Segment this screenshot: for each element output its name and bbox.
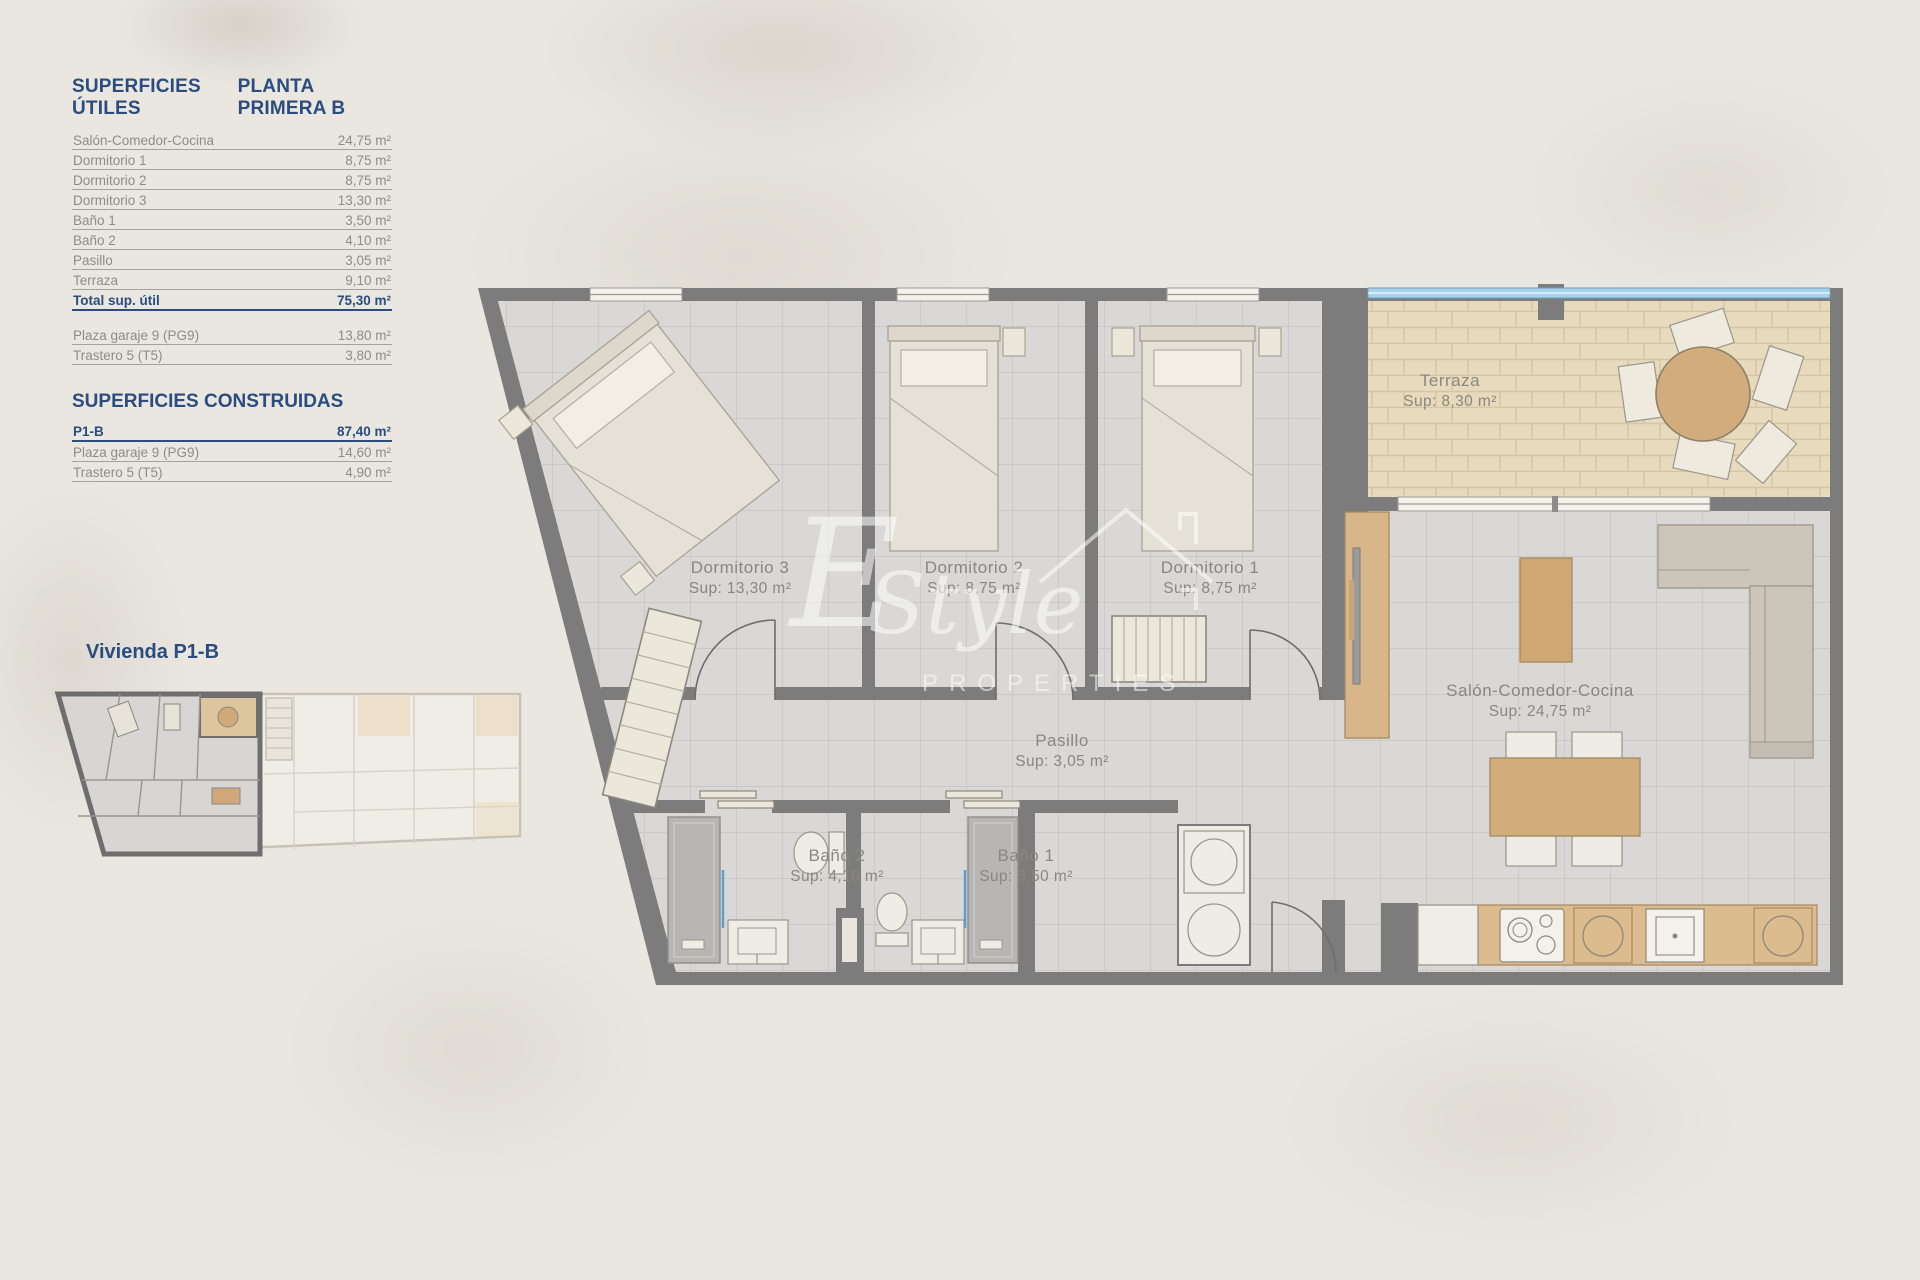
surface-table-panel: SUPERFICIES ÚTILES PLANTA PRIMERA B Saló… bbox=[72, 76, 392, 482]
row-value: 9,10 m² bbox=[345, 274, 391, 287]
panel-section-title: SUPERFICIES CONSTRUIDAS bbox=[72, 391, 392, 413]
table-row: Dormitorio 3 13,30 m² bbox=[72, 192, 392, 210]
row-label: Trastero 5 (T5) bbox=[73, 349, 163, 362]
row-value: 8,75 m² bbox=[345, 154, 391, 167]
table-row-highlight: P1-B 87,40 m² bbox=[72, 423, 392, 442]
toilet-bano-2 bbox=[794, 832, 844, 874]
table-row: Baño 2 4,10 m² bbox=[72, 232, 392, 250]
kitchen-island bbox=[1520, 558, 1572, 662]
texture-blotch bbox=[1250, 980, 1770, 1260]
row-value: 75,30 m² bbox=[337, 294, 391, 307]
kitchen-counter bbox=[1418, 905, 1817, 965]
key-unit-highlight bbox=[58, 694, 260, 854]
terrace-slider-window bbox=[1398, 496, 1710, 512]
row-value: 13,80 m² bbox=[338, 329, 391, 342]
table-row: Pasillo 3,05 m² bbox=[72, 252, 392, 270]
hob bbox=[1500, 909, 1564, 962]
laundry-stack bbox=[1178, 825, 1250, 965]
table-row: Plaza garaje 9 (PG9) 14,60 m² bbox=[72, 444, 392, 462]
bedroom-window bbox=[897, 288, 989, 301]
brochure-page: SUPERFICIES ÚTILES PLANTA PRIMERA B Saló… bbox=[0, 0, 1920, 1280]
row-label: Baño 2 bbox=[73, 234, 116, 247]
shower-bano-1 bbox=[965, 817, 1018, 963]
vanity-bano-2 bbox=[728, 920, 788, 964]
row-value: 13,30 m² bbox=[338, 194, 391, 207]
row-label: Dormitorio 2 bbox=[73, 174, 147, 187]
terrace-glass-railing bbox=[1368, 288, 1830, 298]
row-label: Terraza bbox=[73, 274, 118, 287]
table-row: Terraza 9,10 m² bbox=[72, 272, 392, 290]
row-label: Plaza garaje 9 (PG9) bbox=[73, 329, 199, 342]
key-stair-core bbox=[266, 698, 292, 760]
key-terrace-faded bbox=[358, 696, 410, 736]
vanity-bano-1 bbox=[912, 920, 964, 964]
row-label: Total sup. útil bbox=[73, 294, 160, 307]
bedroom-window bbox=[590, 288, 682, 301]
texture-blotch bbox=[520, 0, 1040, 160]
row-value: 4,90 m² bbox=[345, 466, 391, 479]
table-row: Trastero 5 (T5) 3,80 m² bbox=[72, 347, 392, 365]
tv-unit bbox=[1345, 512, 1389, 738]
unit-key-label: Vivienda P1-B bbox=[86, 641, 219, 664]
table-row: Dormitorio 1 8,75 m² bbox=[72, 152, 392, 170]
floor-plan-drawing bbox=[460, 280, 1850, 1000]
shower-bano-2 bbox=[668, 817, 723, 963]
row-value: 4,10 m² bbox=[345, 234, 391, 247]
row-label: Dormitorio 3 bbox=[73, 194, 147, 207]
row-label: Baño 1 bbox=[73, 214, 116, 227]
panel-subtitle: PLANTA PRIMERA B bbox=[238, 76, 392, 120]
table-row: Salón-Comedor-Cocina 24,75 m² bbox=[72, 132, 392, 150]
row-value: 3,80 m² bbox=[345, 349, 391, 362]
floor-plan: Dormitorio 3 Sup: 13,30 m² Dormitorio 2 … bbox=[460, 280, 1850, 1000]
row-label: Salón-Comedor-Cocina bbox=[73, 134, 214, 147]
fridge bbox=[1418, 905, 1478, 965]
table-row: Plaza garaje 9 (PG9) 13,80 m² bbox=[72, 327, 392, 345]
row-value: 14,60 m² bbox=[338, 446, 391, 459]
row-label: Trastero 5 (T5) bbox=[73, 466, 163, 479]
wardrobe-dormitorio-1 bbox=[1112, 616, 1206, 682]
row-value: 87,40 m² bbox=[337, 425, 391, 438]
row-value: 24,75 m² bbox=[338, 134, 391, 147]
row-label: Pasillo bbox=[73, 254, 113, 267]
row-value: 3,05 m² bbox=[345, 254, 391, 267]
panel-header: SUPERFICIES ÚTILES PLANTA PRIMERA B bbox=[72, 76, 392, 120]
row-value: 3,50 m² bbox=[345, 214, 391, 227]
table-row-total: Total sup. útil 75,30 m² bbox=[72, 292, 392, 311]
row-label: Plaza garaje 9 (PG9) bbox=[73, 446, 199, 459]
sink bbox=[1646, 909, 1704, 962]
panel-title: SUPERFICIES ÚTILES bbox=[72, 76, 238, 120]
duct-inner bbox=[842, 918, 857, 962]
table-row: Baño 1 3,50 m² bbox=[72, 212, 392, 230]
bedroom-window bbox=[1167, 288, 1259, 301]
toilet-bano-1 bbox=[876, 893, 908, 946]
table-row: Dormitorio 2 8,75 m² bbox=[72, 172, 392, 190]
row-label: Dormitorio 1 bbox=[73, 154, 147, 167]
row-label: P1-B bbox=[73, 425, 104, 438]
table-row: Trastero 5 (T5) 4,90 m² bbox=[72, 464, 392, 482]
row-value: 8,75 m² bbox=[345, 174, 391, 187]
